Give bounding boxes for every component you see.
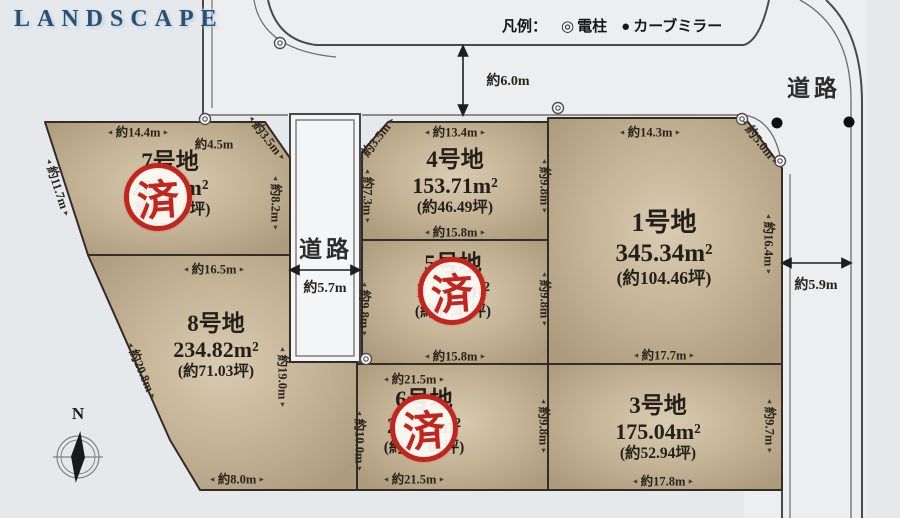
dim-lot7-top: 約14.4m (107, 122, 170, 141)
dim-lot4-bottom: 約15.8m (424, 222, 487, 241)
utility-pole-legend-icon: ◎ (561, 19, 574, 35)
legend-mirror-name: カーブミラー (633, 19, 722, 35)
road-label-right: 道路 (787, 69, 841, 103)
map-legend: 凡例：◎電柱●カーブミラー (502, 15, 722, 36)
dim-lot5-bottom: 約15.8m (424, 346, 487, 365)
dim-lot7-right: 約8.2m (268, 175, 287, 231)
dim-lot8-bottom: 約8.0m (209, 469, 265, 488)
dim-lot5-right: 約9.8m (537, 271, 556, 327)
lot-4-label: 4号地 153.71m² (約46.49坪) (412, 146, 497, 217)
dim-lot4-left: 約7.3m (360, 168, 379, 224)
lot-4-number: 4号地 (412, 146, 497, 173)
dim-lot4-right: 約9.8m (537, 158, 556, 214)
legend-pole-name: 電柱 (577, 19, 607, 35)
lot-1-area: 345.34m² (615, 239, 712, 269)
dim-lot6-bottom: 約21.5m (383, 469, 446, 488)
road-label-center: 道路 (299, 230, 353, 264)
dim-lot8-top: 約16.5m (183, 259, 246, 278)
curve-mirror-legend-icon: ● (621, 19, 630, 35)
dim-center-road-width: 約5.7m (303, 277, 346, 297)
lot-1-number: 1号地 (615, 208, 712, 239)
dim-lot1-bottom: 約17.7m (633, 345, 696, 364)
compass-icon (53, 430, 103, 483)
lot-3-number: 3号地 (615, 392, 700, 419)
lot-3-tsubo: (約52.94坪) (615, 445, 700, 463)
dim-lot4-top: 約13.4m (424, 122, 487, 141)
lot-8-tsubo: (約71.03坪) (173, 363, 258, 381)
dim-lot8-right: 約19.0m (275, 346, 294, 409)
dim-lot6-top: 約21.5m (383, 369, 446, 388)
site-plan-map: LANDSCAPE 凡例：◎電柱●カーブミラー 道路 道路 N 7号地 20m²… (0, 0, 900, 518)
lot-8-area: 234.82m² (173, 337, 258, 363)
lot-3-label: 3号地 175.04m² (約52.94坪) (615, 392, 700, 463)
dim-right-road-width: 約5.9m (794, 274, 837, 294)
dim-lot1-right: 約16.4m (761, 213, 780, 276)
lot-4-area: 153.71m² (412, 173, 497, 199)
compass-north-label: N (72, 404, 84, 424)
lot-1-label: 1号地 345.34m² (約104.46坪) (615, 208, 712, 289)
lot-1-tsubo: (約104.46坪) (615, 268, 712, 289)
landscape-logo: LANDSCAPE (14, 6, 224, 33)
dim-lot6-right: 約9.8m (536, 398, 555, 454)
dim-lot6-left: 約10.0m (352, 410, 371, 473)
dim-lot5-left: 約9.8m (357, 281, 376, 337)
lot-3-area: 175.04m² (615, 419, 700, 445)
dim-lot3-bottom: 約17.8m (632, 471, 695, 490)
lot-8-label: 8号地 234.82m² (約71.03坪) (173, 310, 258, 381)
lot-8-number: 8号地 (173, 310, 258, 337)
legend-label: 凡例： (502, 19, 547, 35)
dim-lot3-right: 約9.7m (762, 398, 781, 454)
dim-top-road-width: 約6.0m (486, 70, 529, 90)
lot-4-tsubo: (約46.49坪) (412, 199, 497, 217)
dim-lot1-top: 約14.3m (619, 122, 682, 141)
